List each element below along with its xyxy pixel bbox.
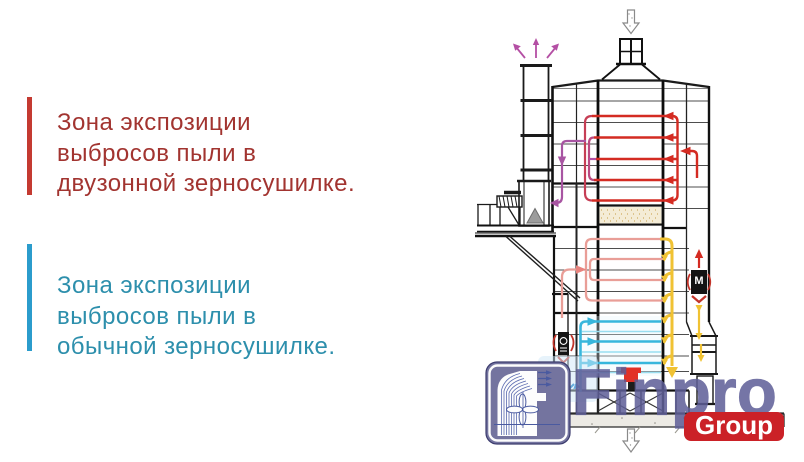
svg-text:Group: Group [695, 410, 773, 440]
svg-text:M: M [694, 275, 703, 287]
